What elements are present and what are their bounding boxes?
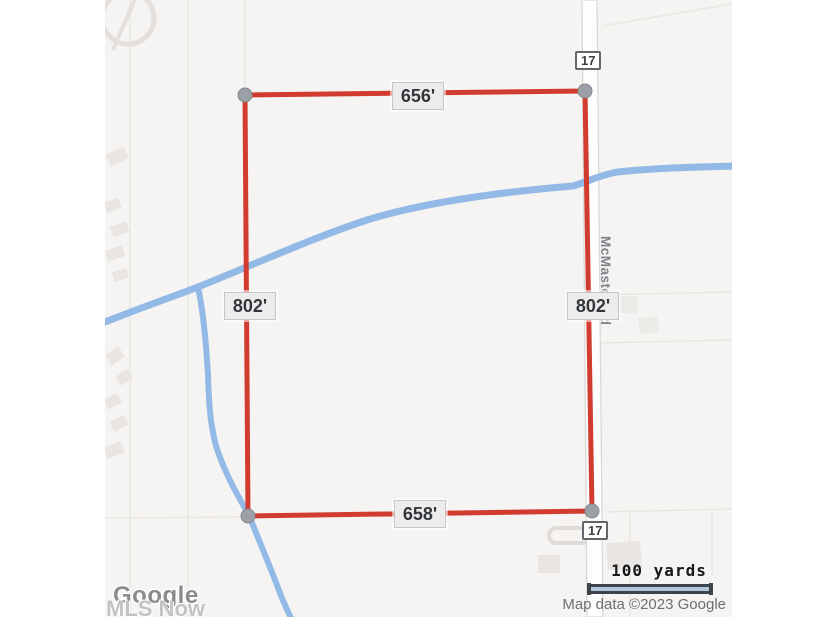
map-attribution-text: Map data ©2023 Google [562,596,726,613]
dimension-label-left: 802' [224,292,276,320]
corner-dot-bottom-left [241,509,255,523]
corner-dot-bottom-right [585,504,599,518]
mls-watermark: MLS Now [106,596,205,622]
corner-dot-top-right [578,84,592,98]
dimension-label-right: 802' [567,292,619,320]
scale-bar-label: 100 yards [600,561,718,580]
boundary-polygon [245,91,592,516]
scale-bar [587,584,713,594]
corner-dot-top-left [238,88,252,102]
dimension-label-bottom: 658' [394,500,446,528]
route-shield-top: 17 [575,51,601,70]
dimension-label-top: 656' [392,82,444,110]
route-shield-bottom: 17 [582,521,608,540]
boundary-corner-dots [238,84,599,523]
map-viewport[interactable]: McMaster Rd 656' 802' 802' 658' 17 17 10… [105,0,732,617]
